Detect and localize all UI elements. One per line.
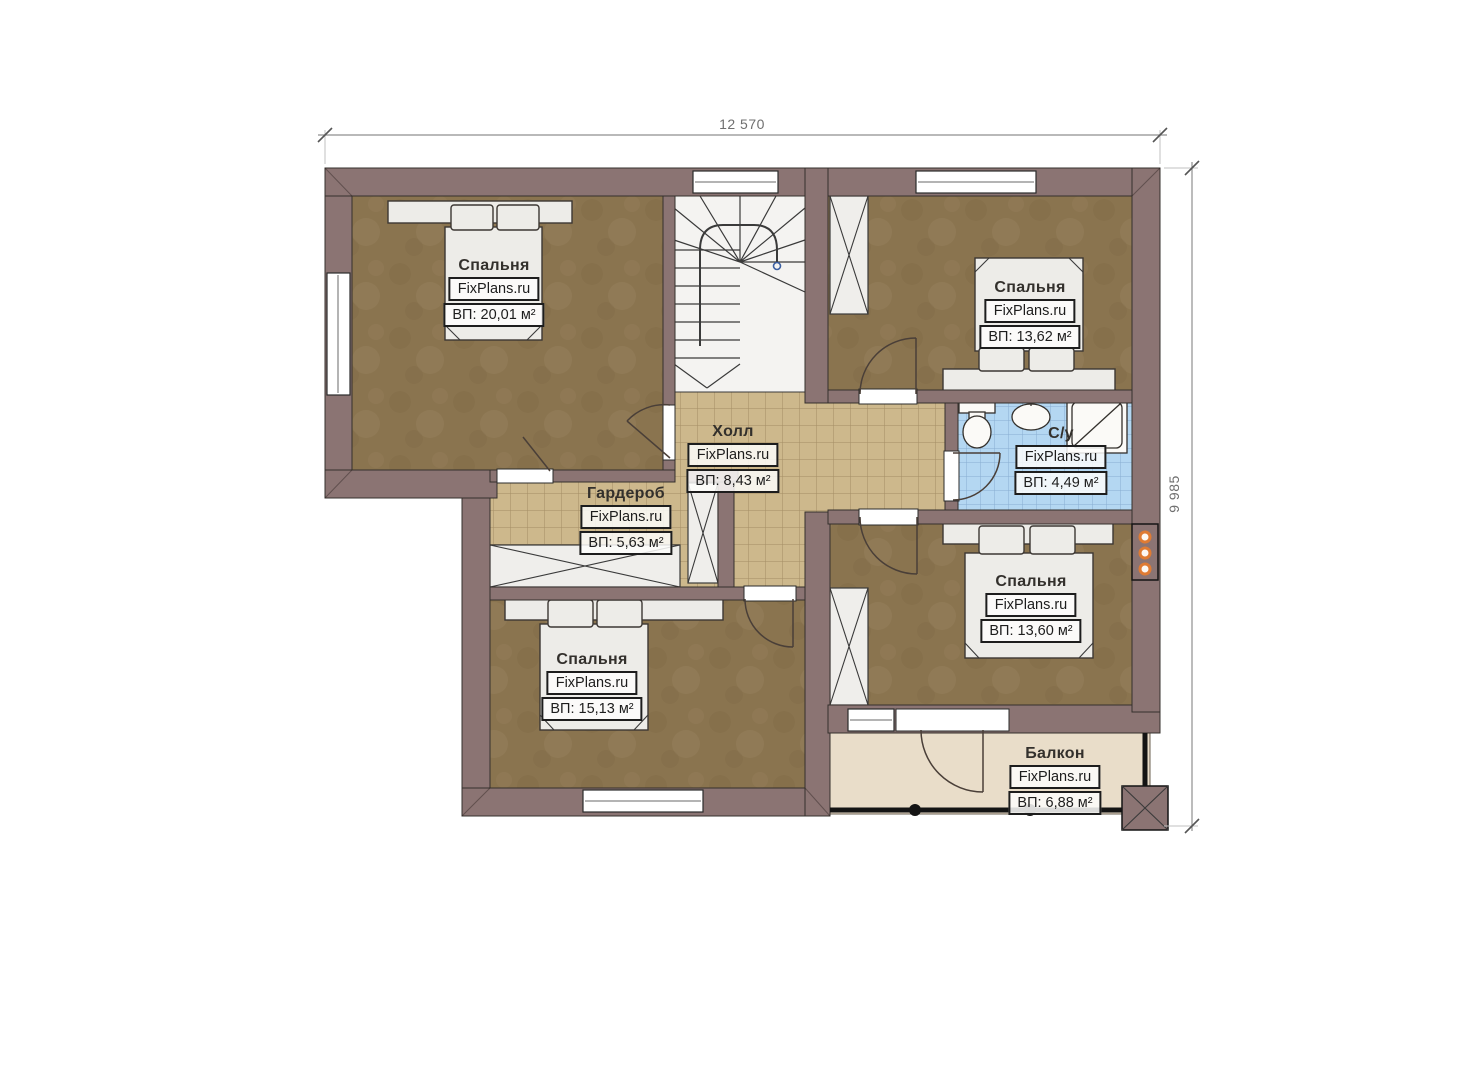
floor-plan-canvas: Спальня FixPlans.ru ВП: 20,01 м² Спальня… [0, 0, 1473, 1080]
ventilation-block [1132, 524, 1158, 580]
room-name: Гардероб [587, 485, 665, 503]
room-label-bathroom: С/у FixPlans.ru ВП: 4,49 м² [1014, 425, 1107, 495]
room-name: С/у [1048, 425, 1074, 443]
brand-box: FixPlans.ru [1010, 765, 1101, 789]
window-balcony [848, 709, 894, 731]
brand-box: FixPlans.ru [581, 505, 672, 529]
area-box: ВП: 4,49 м² [1014, 471, 1107, 495]
floor-corridor [800, 395, 950, 513]
brand-box: FixPlans.ru [986, 593, 1077, 617]
dimension-width-label: 12 570 [719, 116, 765, 132]
wall-bath-stub-upper [945, 403, 958, 452]
wall-lower-left [462, 498, 490, 816]
window-top-right [916, 171, 1036, 193]
area-box: ВП: 13,62 м² [979, 325, 1080, 349]
dimension-height-label: 9 985 [1166, 475, 1182, 513]
wall-topleft-bottom [325, 470, 497, 498]
room-name: Спальня [995, 573, 1066, 591]
wall-stairs-right [805, 168, 828, 403]
area-box: ВП: 20,01 м² [443, 303, 544, 327]
brand-box: FixPlans.ru [985, 299, 1076, 323]
brand-box: FixPlans.ru [1016, 445, 1107, 469]
area-box: ВП: 6,88 м² [1008, 791, 1101, 815]
window-bottom [583, 790, 703, 812]
corner-post [1122, 786, 1168, 830]
area-box: ВП: 15,13 м² [541, 697, 642, 721]
wall-center-vertical [805, 512, 830, 816]
area-box: ВП: 13,60 м² [980, 619, 1081, 643]
room-label-balcony: Балкон FixPlans.ru ВП: 6,88 м² [1008, 745, 1101, 815]
room-name: Холл [712, 423, 753, 441]
brand-box: FixPlans.ru [688, 443, 779, 467]
brand-box: FixPlans.ru [449, 277, 540, 301]
wall-wardrobe-right [718, 482, 734, 588]
closet-wardrobe-tall [688, 483, 718, 583]
wall-right [1132, 168, 1160, 712]
area-box: ВП: 5,63 м² [579, 531, 672, 555]
room-name: Спальня [556, 651, 627, 669]
room-label-hall: Холл FixPlans.ru ВП: 8,43 м² [686, 423, 779, 493]
area-box: ВП: 8,43 м² [686, 469, 779, 493]
room-label-bedroom-right: Спальня FixPlans.ru ВП: 13,60 м² [980, 573, 1081, 643]
room-label-bedroom-top-right: Спальня FixPlans.ru ВП: 13,62 м² [979, 279, 1080, 349]
floor-plan-svg [0, 0, 1473, 1080]
window-left [327, 273, 350, 395]
room-label-bedroom-bottom-left: Спальня FixPlans.ru ВП: 15,13 м² [541, 651, 642, 721]
window-top-stairs [693, 171, 778, 193]
closet-bedroom-right [830, 588, 868, 705]
room-name: Спальня [994, 279, 1065, 297]
dimension-line-top [318, 128, 1167, 164]
brand-box: FixPlans.ru [547, 671, 638, 695]
wall-bath-stub-lower [945, 500, 958, 511]
room-label-bedroom-top-left: Спальня FixPlans.ru ВП: 20,01 м² [443, 257, 544, 327]
room-label-wardrobe: Гардероб FixPlans.ru ВП: 5,63 м² [579, 485, 672, 555]
room-name: Спальня [458, 257, 529, 275]
room-name: Балкон [1025, 745, 1085, 763]
closet-bedroom-top-right [830, 196, 868, 314]
